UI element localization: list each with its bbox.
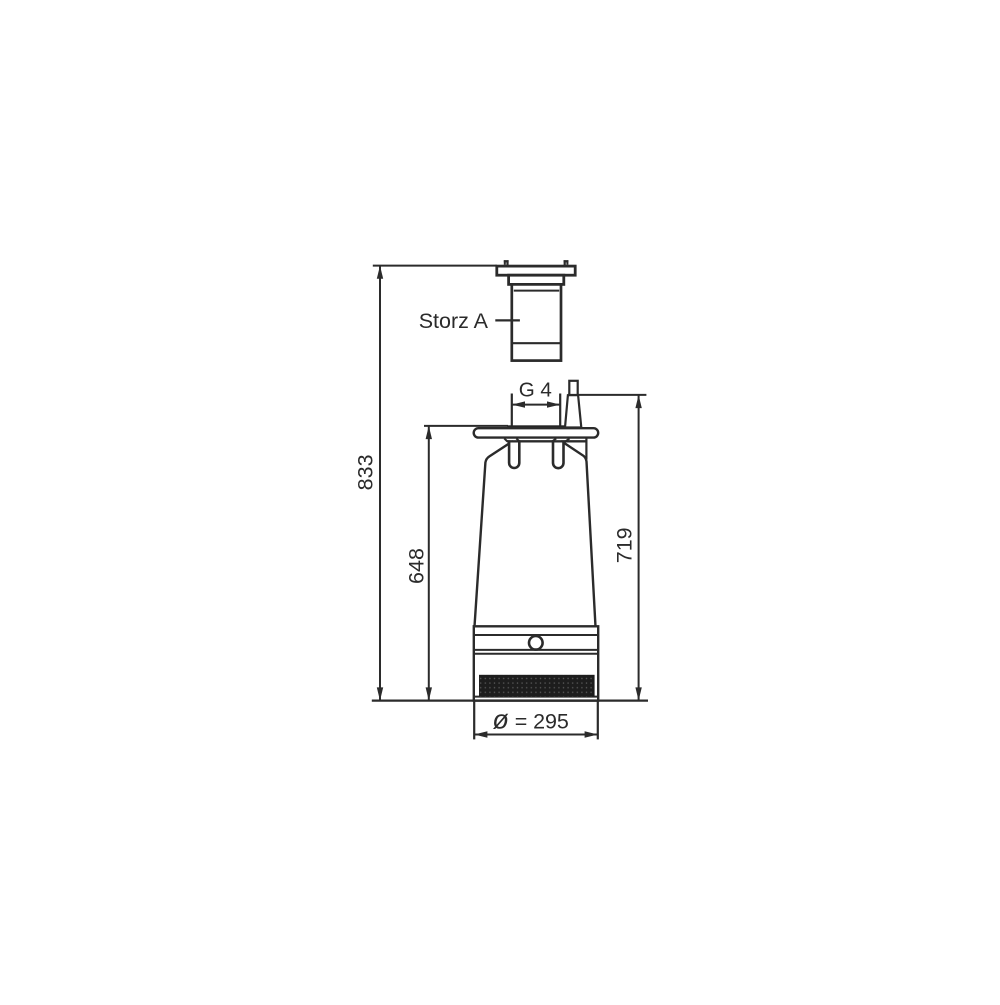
svg-text:G 4: G 4: [519, 379, 552, 402]
svg-text:833: 833: [353, 454, 377, 490]
svg-text:648: 648: [404, 548, 428, 584]
svg-text:Storz A: Storz A: [419, 309, 489, 333]
svg-text:719: 719: [612, 527, 636, 563]
svg-text:ø = 295: ø = 295: [492, 704, 569, 734]
